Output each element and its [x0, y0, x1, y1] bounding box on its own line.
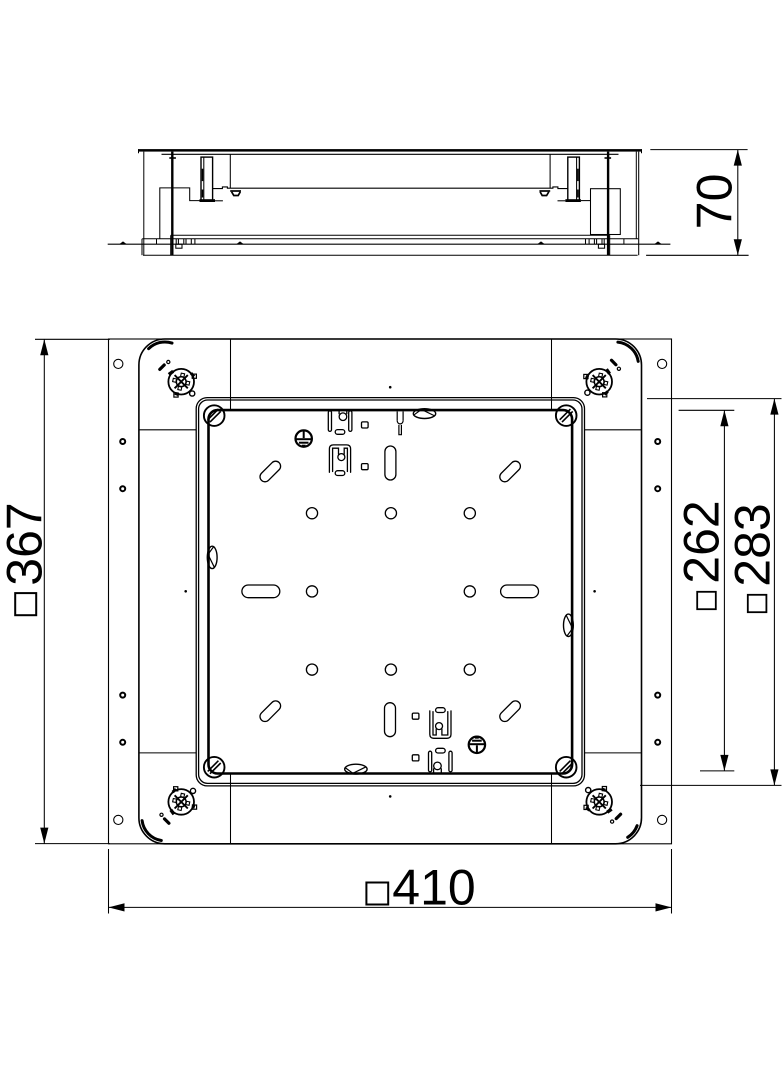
svg-text:367: 367 [0, 502, 53, 585]
svg-text:70: 70 [687, 174, 743, 230]
svg-text:283: 283 [725, 503, 781, 586]
svg-text:410: 410 [392, 860, 475, 916]
svg-text:262: 262 [674, 500, 730, 583]
